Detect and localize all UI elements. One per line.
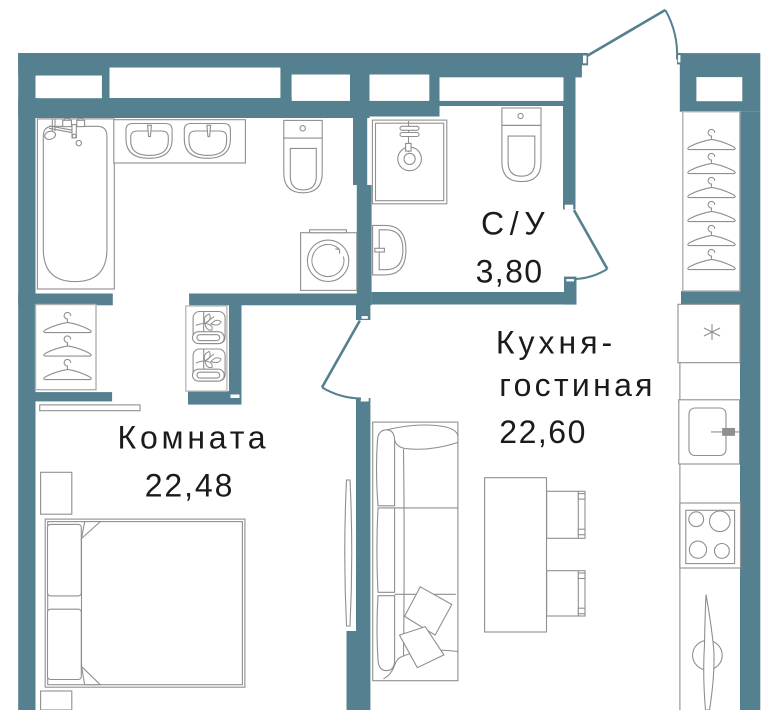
- svg-text:3,80: 3,80: [476, 253, 544, 289]
- svg-text:гостиная: гостиная: [499, 367, 656, 403]
- svg-text:С/У: С/У: [481, 206, 550, 242]
- svg-text:Кухня-: Кухня-: [496, 325, 616, 361]
- svg-text:22,60: 22,60: [499, 414, 587, 450]
- svg-text:Комната: Комната: [118, 420, 270, 456]
- svg-text:22,48: 22,48: [145, 468, 235, 504]
